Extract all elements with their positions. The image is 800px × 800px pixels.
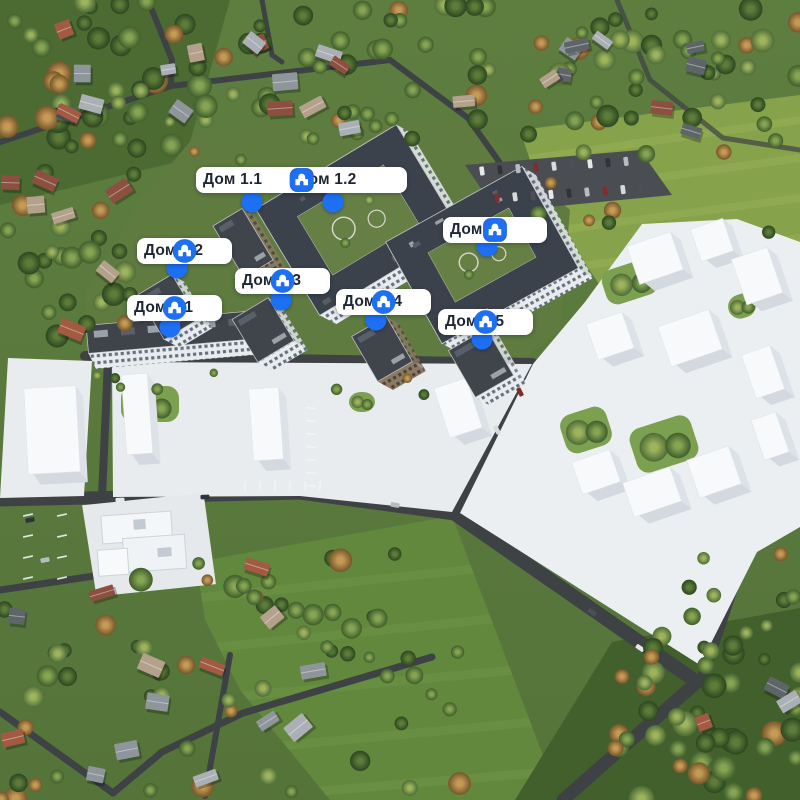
- marker-dot[interactable]: [242, 192, 263, 213]
- building-marker-item[interactable]: Дом 3.2: [144, 242, 225, 260]
- building-marker-item[interactable]: Дом 3.5: [445, 313, 526, 331]
- building-label-pill[interactable]: Дом 3.1: [127, 295, 222, 321]
- building-label-pill[interactable]: Дом 3.5: [438, 309, 533, 335]
- building-markers-layer: Дом 1.1Дом 1.2Дом 2Дом 3.2Дом 3.3Дом 3.1…: [0, 0, 800, 800]
- building-label-pill[interactable]: Дом 2: [443, 217, 547, 243]
- building-circle-icon: [207, 242, 225, 260]
- building-marker-item[interactable]: Дом 1.2: [297, 171, 400, 189]
- building-marker-item[interactable]: Дом 3.1: [134, 299, 215, 317]
- building-circle-icon: [305, 272, 323, 290]
- building-circle-icon: [406, 293, 424, 311]
- building-circle-icon: [197, 299, 215, 317]
- building-marker-item[interactable]: Дом 2: [450, 221, 540, 239]
- marker-dot[interactable]: [323, 192, 344, 213]
- building-label-pill[interactable]: Дом 3.2: [137, 238, 232, 264]
- building-circle-icon: [508, 313, 526, 331]
- building-label-pill[interactable]: Дом 1.1Дом 1.2: [196, 167, 407, 193]
- genplan-map: Дом 1.1Дом 1.2Дом 2Дом 3.2Дом 3.3Дом 3.1…: [0, 0, 800, 800]
- building-marker-item[interactable]: Дом 3.3: [242, 272, 323, 290]
- building-circle-icon: [382, 171, 400, 189]
- building-circle-icon: [522, 221, 540, 239]
- building-label-pill[interactable]: Дом 3.4: [336, 289, 431, 315]
- building-marker-item[interactable]: Дом 3.4: [343, 293, 424, 311]
- building-label-pill[interactable]: Дом 3.3: [235, 268, 330, 294]
